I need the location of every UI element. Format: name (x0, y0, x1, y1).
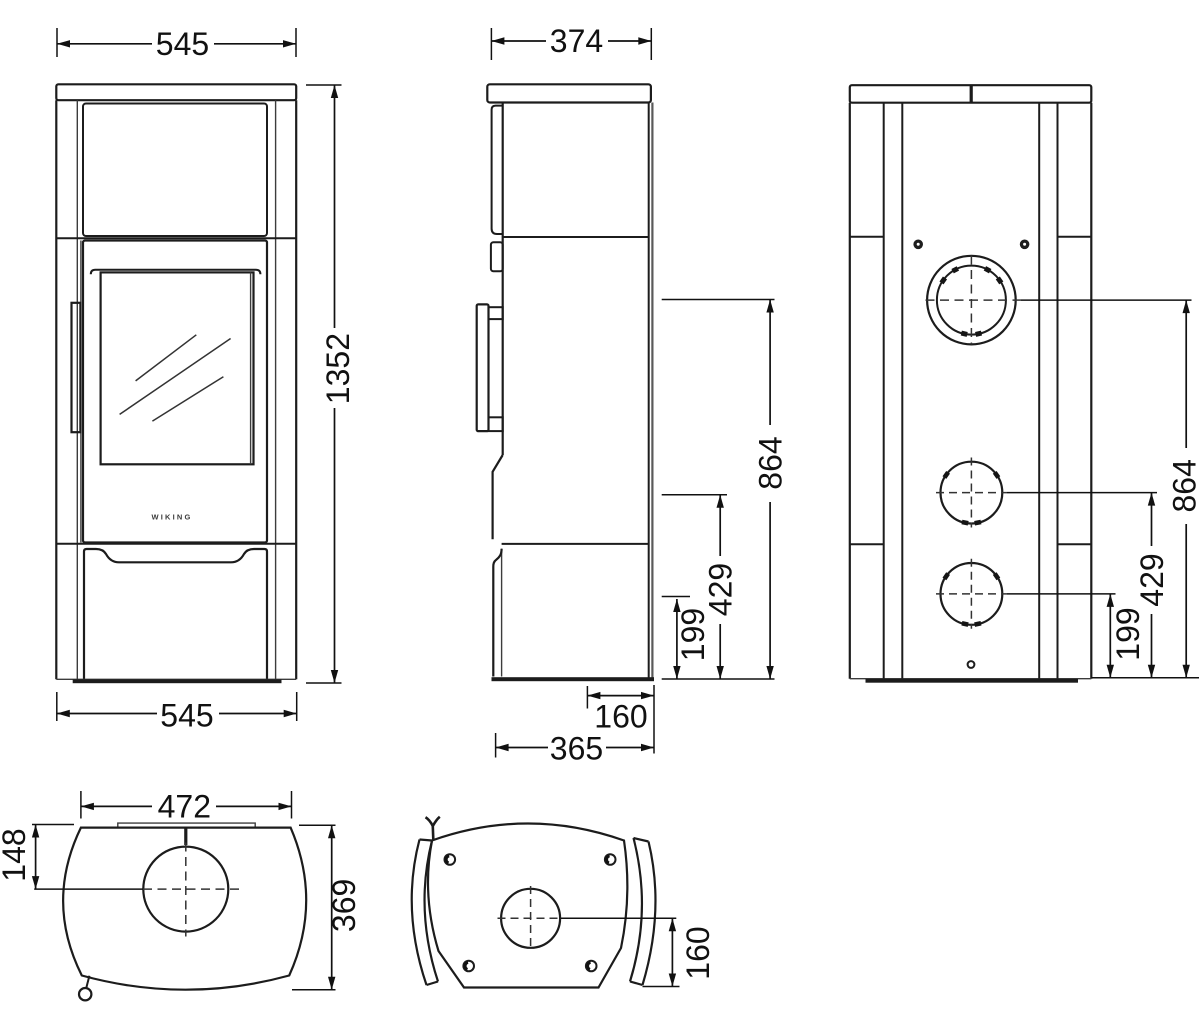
svg-text:160: 160 (594, 699, 647, 735)
svg-text:160: 160 (680, 926, 716, 979)
svg-text:369: 369 (326, 879, 362, 932)
svg-text:864: 864 (753, 436, 789, 489)
svg-text:429: 429 (1134, 553, 1170, 606)
svg-text:374: 374 (550, 23, 603, 59)
svg-text:545: 545 (156, 26, 209, 62)
svg-text:199: 199 (1110, 607, 1146, 660)
svg-text:545: 545 (160, 698, 213, 734)
svg-text:472: 472 (158, 789, 211, 825)
svg-text:148: 148 (0, 828, 32, 881)
svg-text:1352: 1352 (320, 333, 356, 404)
svg-text:WIKING: WIKING (151, 513, 192, 522)
svg-text:365: 365 (550, 731, 603, 767)
svg-text:199: 199 (675, 608, 711, 661)
svg-text:864: 864 (1167, 459, 1200, 512)
